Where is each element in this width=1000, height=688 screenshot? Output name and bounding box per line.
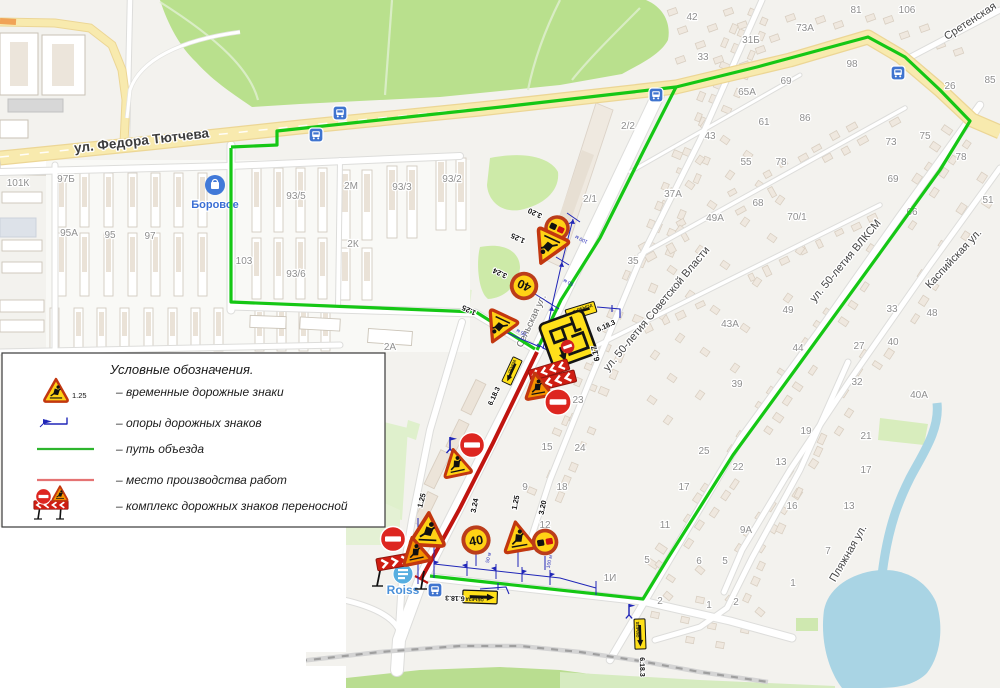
svg-text:73: 73 xyxy=(885,137,897,148)
svg-text:17: 17 xyxy=(678,482,690,493)
svg-text:73А: 73А xyxy=(796,23,814,34)
svg-text:48: 48 xyxy=(926,308,938,319)
svg-text:15: 15 xyxy=(541,442,553,453)
svg-text:86: 86 xyxy=(799,113,811,124)
svg-text:27: 27 xyxy=(853,341,865,352)
svg-text:43: 43 xyxy=(704,131,716,142)
svg-text:5: 5 xyxy=(644,555,650,566)
svg-text:2: 2 xyxy=(657,596,663,607)
svg-text:9: 9 xyxy=(522,482,528,493)
svg-text:97Б: 97Б xyxy=(57,174,75,185)
svg-text:6: 6 xyxy=(696,556,702,567)
svg-text:95: 95 xyxy=(104,230,116,241)
svg-text:6.18.3: 6.18.3 xyxy=(638,657,645,677)
svg-text:– временные дорожные знаки: – временные дорожные знаки xyxy=(115,385,284,399)
svg-text:68: 68 xyxy=(752,198,764,209)
svg-text:97: 97 xyxy=(144,231,156,242)
svg-text:2К: 2К xyxy=(347,239,359,250)
svg-text:26: 26 xyxy=(944,81,956,92)
svg-text:1.25: 1.25 xyxy=(72,391,87,400)
svg-text:– комплекс дорожных знаков пер: – комплекс дорожных знаков переносной xyxy=(115,499,348,513)
svg-text:35: 35 xyxy=(627,256,639,267)
svg-text:70/1: 70/1 xyxy=(787,212,807,223)
svg-text:103: 103 xyxy=(236,256,253,267)
svg-text:93/2: 93/2 xyxy=(442,174,462,185)
svg-text:22: 22 xyxy=(732,462,744,473)
svg-text:33: 33 xyxy=(697,52,709,63)
svg-text:49А: 49А xyxy=(706,213,724,224)
svg-text:69: 69 xyxy=(780,76,792,87)
svg-text:1И: 1И xyxy=(604,573,617,584)
svg-text:51: 51 xyxy=(982,195,994,206)
svg-text:55: 55 xyxy=(740,157,752,168)
svg-text:2: 2 xyxy=(733,597,739,608)
svg-text:44: 44 xyxy=(792,343,804,354)
svg-text:7: 7 xyxy=(825,546,831,557)
svg-text:6.18.3: 6.18.3 xyxy=(445,594,465,602)
svg-text:1: 1 xyxy=(790,578,796,589)
svg-text:98: 98 xyxy=(846,59,858,70)
svg-text:78: 78 xyxy=(955,152,967,163)
svg-text:65А: 65А xyxy=(738,87,756,98)
svg-text:13: 13 xyxy=(775,457,787,468)
svg-text:39: 39 xyxy=(731,379,743,390)
svg-text:– путь объезда: – путь объезда xyxy=(115,442,204,456)
svg-text:2/2: 2/2 xyxy=(621,121,635,132)
svg-text:2/1: 2/1 xyxy=(583,194,597,205)
svg-text:16: 16 xyxy=(786,501,798,512)
svg-text:81: 81 xyxy=(850,5,862,16)
svg-text:Roiss: Roiss xyxy=(387,583,420,597)
svg-text:Условные обозначения.: Условные обозначения. xyxy=(109,362,254,377)
svg-text:17: 17 xyxy=(860,465,872,476)
svg-text:25: 25 xyxy=(698,446,710,457)
svg-text:93/6: 93/6 xyxy=(286,269,306,280)
svg-text:43А: 43А xyxy=(721,319,739,330)
svg-text:2А: 2А xyxy=(384,342,397,353)
svg-text:– место производства работ: – место производства работ xyxy=(115,473,287,487)
svg-text:13: 13 xyxy=(843,501,855,512)
svg-text:5: 5 xyxy=(722,556,728,567)
svg-text:33: 33 xyxy=(886,304,898,315)
svg-text:95А: 95А xyxy=(60,228,78,239)
svg-text:32: 32 xyxy=(851,377,863,388)
svg-text:75: 75 xyxy=(919,131,931,142)
svg-text:2М: 2М xyxy=(344,181,358,192)
svg-text:18: 18 xyxy=(556,482,568,493)
svg-text:78: 78 xyxy=(775,157,787,168)
svg-text:23: 23 xyxy=(572,395,584,406)
svg-text:37А: 37А xyxy=(664,189,682,200)
svg-text:31Б: 31Б xyxy=(742,35,760,46)
svg-text:42: 42 xyxy=(686,12,698,23)
svg-text:93/5: 93/5 xyxy=(286,191,306,202)
svg-text:93/3: 93/3 xyxy=(392,182,412,193)
svg-text:61: 61 xyxy=(758,117,770,128)
svg-text:19: 19 xyxy=(800,426,812,437)
svg-text:40: 40 xyxy=(887,337,899,348)
svg-text:– опоры дорожных знаков: – опоры дорожных знаков xyxy=(115,416,262,430)
svg-text:11: 11 xyxy=(660,520,671,531)
svg-text:1: 1 xyxy=(706,600,712,611)
svg-text:69: 69 xyxy=(887,174,899,185)
svg-text:40А: 40А xyxy=(910,390,928,401)
svg-text:49: 49 xyxy=(782,305,794,316)
svg-text:101К: 101К xyxy=(7,178,30,189)
svg-text:24: 24 xyxy=(574,443,586,454)
svg-text:9А: 9А xyxy=(740,525,753,536)
svg-text:85: 85 xyxy=(984,75,996,86)
svg-text:21: 21 xyxy=(860,431,872,442)
svg-text:106: 106 xyxy=(899,5,916,16)
